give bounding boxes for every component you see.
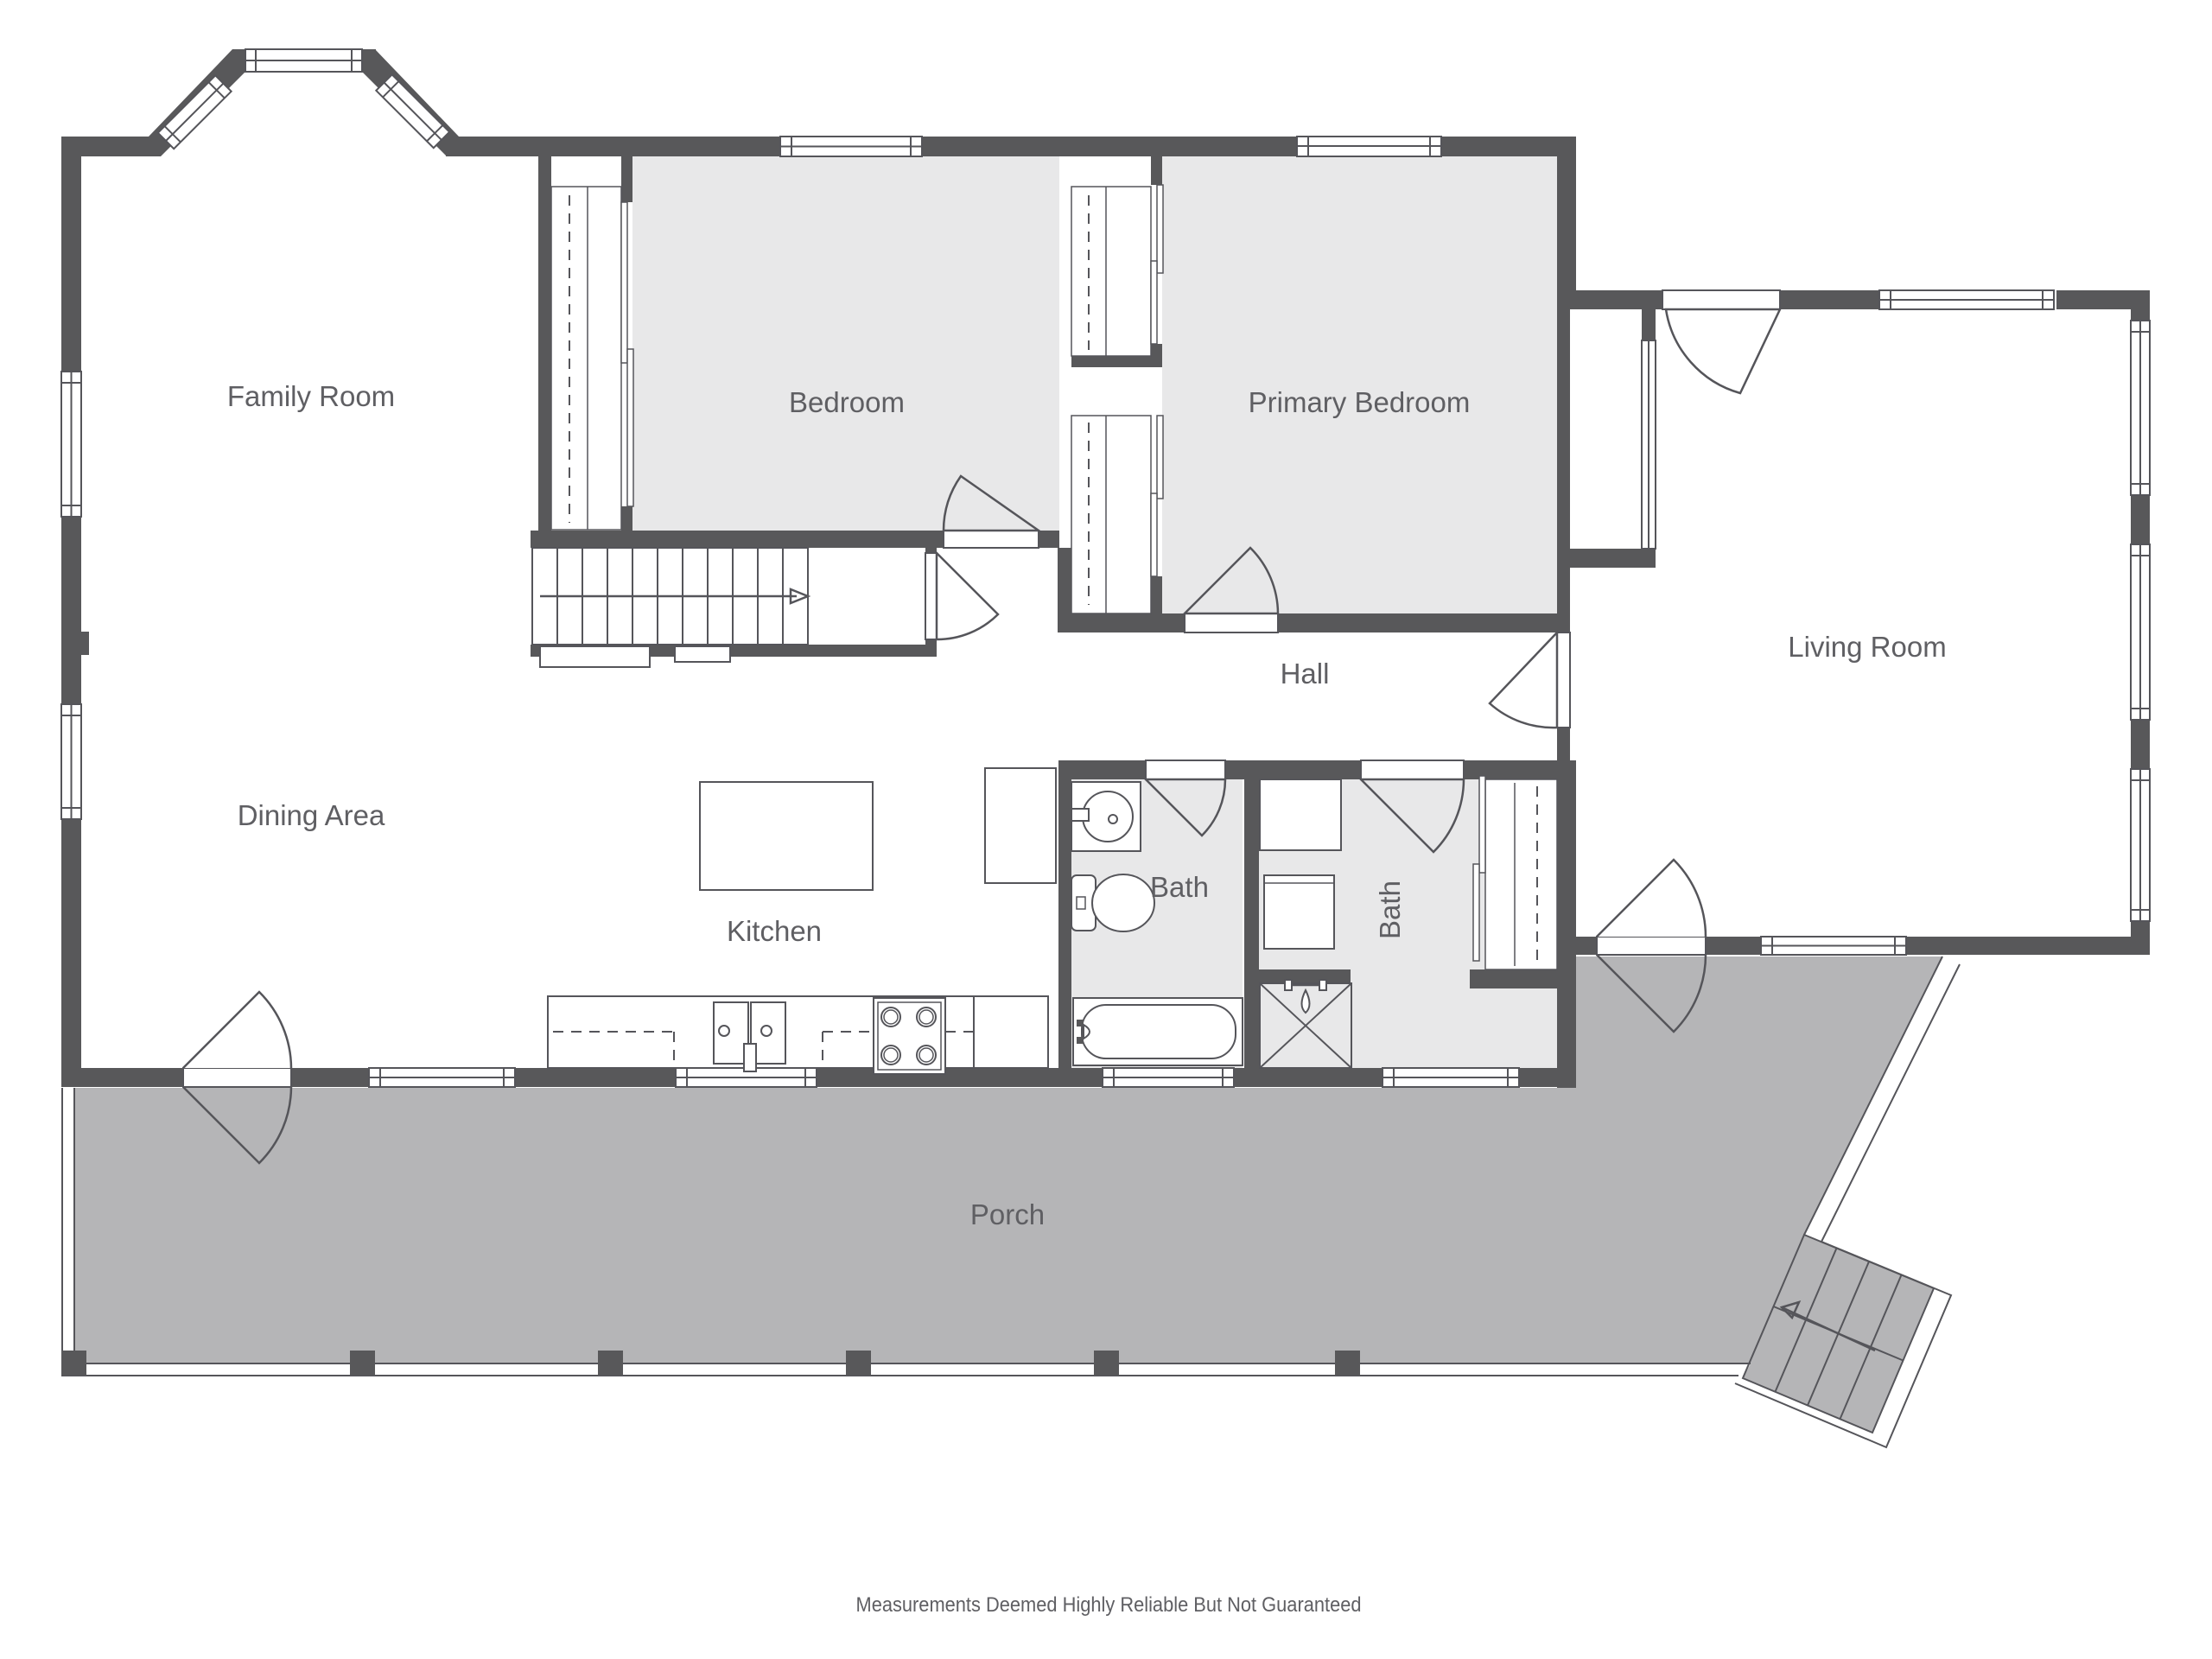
svg-text:Bath: Bath <box>1150 871 1209 903</box>
svg-text:Kitchen: Kitchen <box>727 915 822 947</box>
svg-text:Dining Area: Dining Area <box>238 799 385 831</box>
svg-text:Living Room: Living Room <box>1788 631 1946 663</box>
svg-text:Family Room: Family Room <box>227 380 395 412</box>
svg-text:Hall: Hall <box>1281 658 1330 690</box>
svg-text:Bath: Bath <box>1374 880 1406 939</box>
svg-text:Porch: Porch <box>970 1198 1045 1230</box>
svg-text:Bedroom: Bedroom <box>789 386 905 418</box>
svg-text:Primary Bedroom: Primary Bedroom <box>1249 386 1471 418</box>
svg-text:Measurements Deemed Highly Rel: Measurements Deemed Highly Reliable But … <box>856 1593 1362 1617</box>
